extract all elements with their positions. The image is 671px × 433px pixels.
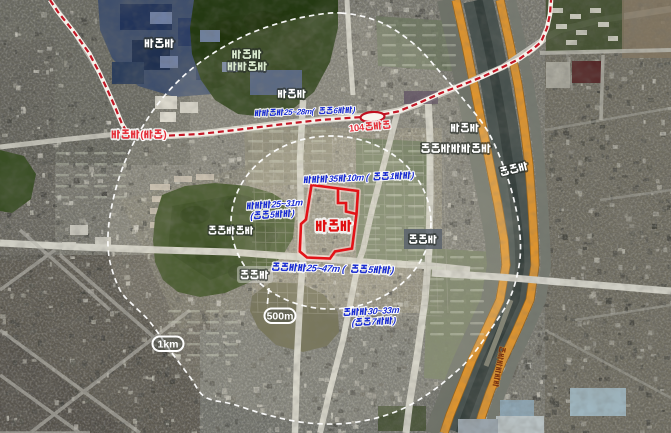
- svg-text:104: 104: [349, 122, 366, 134]
- svg-text:25~47m (: 25~47m (: [305, 263, 348, 275]
- svg-text:25~28m(: 25~28m(: [283, 107, 317, 117]
- svg-text:500m: 500m: [267, 311, 294, 323]
- svg-text:1km: 1km: [157, 339, 178, 351]
- svg-text:): ): [163, 129, 166, 141]
- svg-text:10m (: 10m (: [346, 172, 370, 183]
